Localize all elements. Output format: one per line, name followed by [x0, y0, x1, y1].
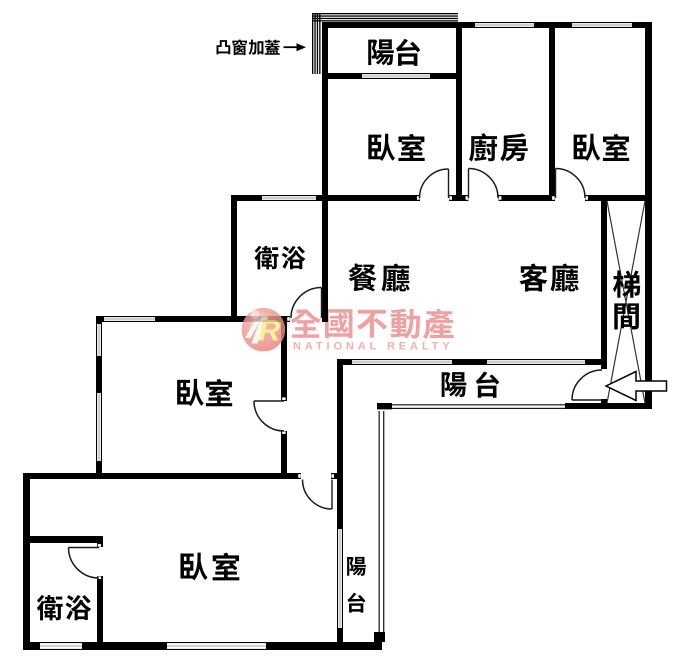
svg-text:NATIONAL REALTY: NATIONAL REALTY [293, 341, 454, 353]
svg-text:R: R [259, 315, 281, 348]
